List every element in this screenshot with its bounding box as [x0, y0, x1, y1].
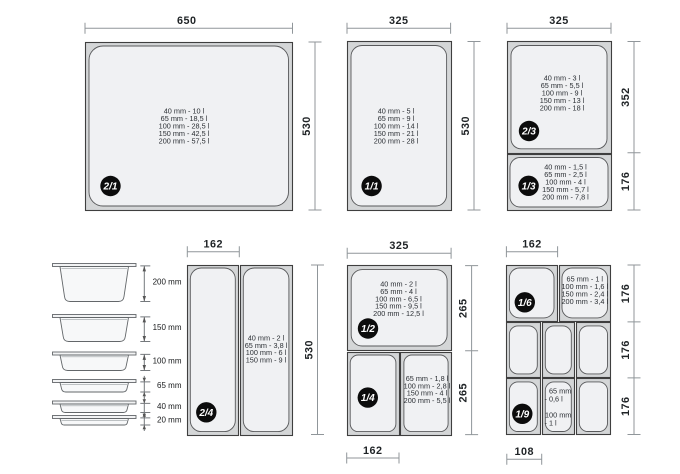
svg-text:1/2: 1/2	[361, 324, 375, 335]
svg-text:325: 325	[389, 240, 409, 252]
svg-text:100 mm: 100 mm	[153, 356, 182, 365]
svg-text:530: 530	[460, 116, 472, 136]
svg-text:200 mm - 12,5 l: 200 mm - 12,5 l	[373, 309, 424, 318]
svg-text:2/3: 2/3	[521, 127, 536, 138]
svg-text:200 mm - 18 l: 200 mm - 18 l	[540, 103, 585, 112]
svg-text:162: 162	[204, 239, 224, 251]
svg-text:530: 530	[304, 340, 316, 360]
svg-text:1/4: 1/4	[361, 393, 375, 404]
svg-text:325: 325	[389, 15, 409, 27]
svg-text:200 mm: 200 mm	[153, 278, 182, 287]
svg-text:1/9: 1/9	[515, 409, 529, 420]
svg-text:530: 530	[301, 116, 313, 136]
svg-text:200 mm - 57,5 l: 200 mm - 57,5 l	[159, 136, 210, 145]
svg-text:1/6: 1/6	[518, 298, 532, 309]
svg-text:162: 162	[363, 445, 383, 457]
svg-text:1/3: 1/3	[522, 181, 536, 192]
svg-text:650: 650	[177, 15, 197, 27]
svg-text:265: 265	[458, 383, 470, 403]
svg-text:176: 176	[620, 172, 632, 192]
svg-text:2/4: 2/4	[198, 408, 213, 419]
svg-text:200 mm - 7,8 l: 200 mm - 7,8 l	[542, 192, 589, 201]
svg-text:40 mm: 40 mm	[157, 402, 182, 411]
svg-text:200 mm - 5,5 l: 200 mm - 5,5 l	[404, 396, 451, 405]
svg-text:150 mm: 150 mm	[153, 323, 182, 332]
svg-text:200 mm - 3,4 l: 200 mm - 3,4 l	[561, 297, 608, 306]
svg-text:2/1: 2/1	[103, 182, 118, 193]
svg-text:176: 176	[620, 396, 632, 416]
svg-text:265: 265	[458, 298, 470, 318]
svg-text:20 mm: 20 mm	[157, 415, 182, 424]
svg-text:- 1 l: - 1 l	[545, 418, 558, 427]
svg-text:150 mm - 9 l: 150 mm - 9 l	[246, 356, 287, 365]
svg-text:325: 325	[549, 15, 569, 27]
svg-text:162: 162	[522, 239, 542, 251]
svg-text:65 mm: 65 mm	[157, 381, 182, 390]
svg-text:1/1: 1/1	[365, 182, 379, 193]
svg-text:200 mm - 28 l: 200 mm - 28 l	[374, 136, 419, 145]
svg-text:176: 176	[620, 284, 632, 304]
svg-text:108: 108	[514, 446, 534, 458]
svg-text:352: 352	[620, 87, 632, 107]
svg-text:- 0,6 l: - 0,6 l	[545, 394, 564, 403]
svg-text:176: 176	[620, 340, 632, 360]
